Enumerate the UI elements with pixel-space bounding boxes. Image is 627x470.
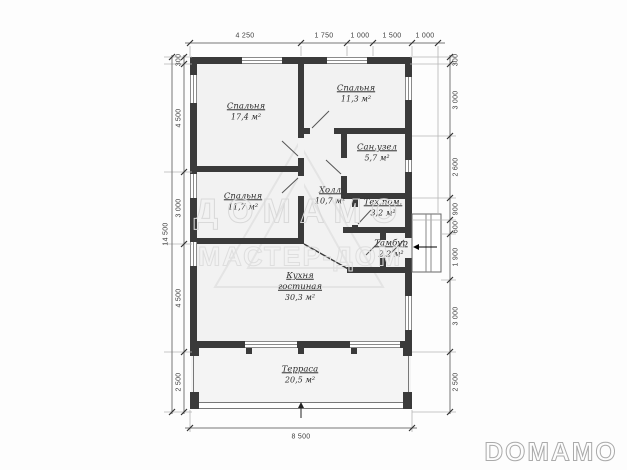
room-label-kitchen-living: Кухня гостиная 30,3 м² bbox=[278, 271, 322, 303]
brand-logo: DOMAMO bbox=[484, 437, 617, 468]
watermark-subbrand: МАСТЕР-ДОМ bbox=[198, 242, 402, 273]
dim-left-5: 2 500 bbox=[176, 372, 183, 391]
room-label-bedroom-2: Спальня 11,3 м² bbox=[337, 83, 375, 104]
dim-right-7: 3 000 bbox=[453, 306, 460, 325]
dim-top-1: 4 250 bbox=[235, 33, 254, 40]
dim-right-4: 900 bbox=[453, 203, 460, 216]
room-name: Спальня bbox=[227, 101, 265, 112]
room-name: Сан.узел bbox=[357, 142, 397, 153]
dim-bottom-total: 8 500 bbox=[291, 434, 310, 441]
dim-left-1: 300 bbox=[176, 54, 183, 67]
room-area: 30,3 м² bbox=[278, 293, 322, 303]
room-label-bathroom: Сан.узел 5,7 м² bbox=[357, 142, 397, 163]
dim-left-3: 3 000 bbox=[176, 198, 183, 217]
dim-right-6: 1 900 bbox=[453, 247, 460, 266]
dim-top-5: 1 000 bbox=[415, 33, 434, 40]
room-area: 5,7 м² bbox=[357, 153, 397, 163]
room-area: 20,5 м² bbox=[282, 375, 318, 385]
dim-top-4: 1 500 bbox=[382, 33, 401, 40]
dim-right-5: 600 bbox=[453, 221, 460, 234]
room-label-bedroom-1: Спальня 17,4 м² bbox=[227, 101, 265, 122]
room-area: 11,3 м² bbox=[337, 94, 375, 104]
dim-left-4: 4 500 bbox=[176, 288, 183, 307]
dim-top-3: 1 000 bbox=[350, 33, 369, 40]
dim-right-2: 3 000 bbox=[453, 90, 460, 109]
terrace-entry-arrow-icon bbox=[298, 402, 304, 418]
watermark-brand: ДОМАМО bbox=[194, 193, 406, 232]
room-name: Терраса bbox=[282, 364, 318, 375]
room-name: Спальня bbox=[337, 83, 375, 94]
room-name-2: гостиная bbox=[278, 282, 322, 293]
floor-plan-sheet: Спальня 17,4 м² Спальня 11,3 м² Сан.узел… bbox=[0, 0, 627, 470]
dim-right-3: 2 600 bbox=[453, 157, 460, 176]
dim-top-2: 1 750 bbox=[314, 33, 333, 40]
dim-left-2: 4 500 bbox=[176, 108, 183, 127]
dim-right-8: 2 500 bbox=[453, 372, 460, 391]
dim-left-total: 14 500 bbox=[163, 222, 170, 245]
dim-right-1: 300 bbox=[453, 54, 460, 67]
room-label-terrace: Терраса 20,5 м² bbox=[282, 364, 318, 385]
floor-plan-drawing bbox=[0, 0, 627, 470]
room-area: 17,4 м² bbox=[227, 112, 265, 122]
porch-steps bbox=[412, 214, 441, 272]
